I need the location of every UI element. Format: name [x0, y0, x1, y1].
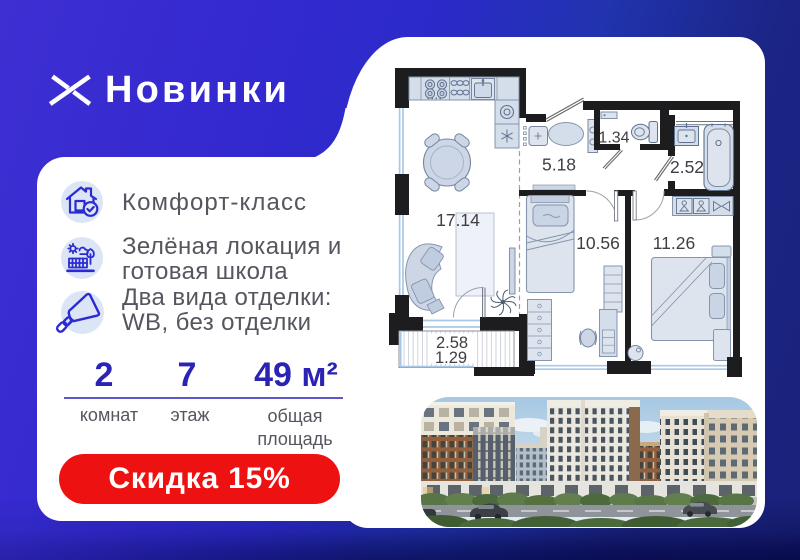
svg-text:1.29: 1.29: [435, 349, 467, 367]
svg-text:5.18: 5.18: [542, 155, 576, 175]
svg-text:1.34: 1.34: [598, 130, 629, 147]
svg-text:11.26: 11.26: [653, 233, 696, 253]
svg-text:10.56: 10.56: [576, 233, 620, 253]
svg-text:17.14: 17.14: [436, 210, 480, 230]
svg-text:2.52: 2.52: [670, 157, 704, 177]
